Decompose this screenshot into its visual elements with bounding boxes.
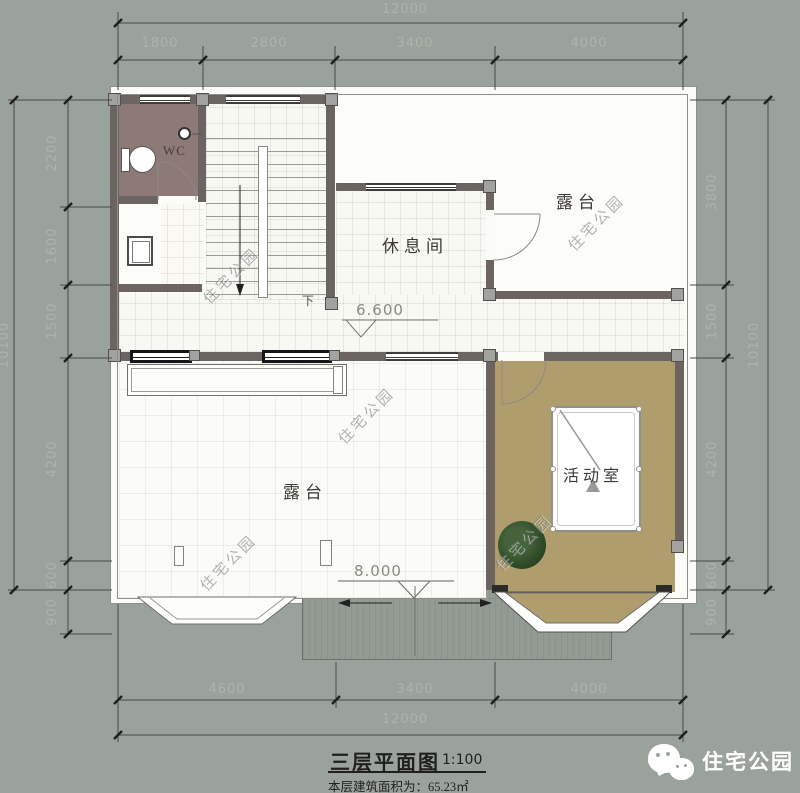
column: [483, 349, 496, 362]
wall-wc-right: [198, 104, 206, 202]
column: [108, 349, 121, 362]
wall-hall-bottom-c: [332, 352, 386, 361]
planter-end-post: [333, 366, 343, 394]
window-stairs-top: [226, 95, 300, 104]
column: [483, 180, 496, 193]
wall-terrace-top-bottom: [486, 291, 684, 299]
window-wc-top: [140, 95, 190, 104]
window-hall-bottom: [386, 352, 458, 361]
shaft-fixture: [127, 236, 153, 266]
wall-hall-bottom-e: [544, 352, 684, 361]
level-text-6600: 6.600: [356, 301, 404, 319]
dim-top-seg: 2800: [239, 36, 299, 51]
wall-wc-bottom: [110, 196, 158, 204]
column: [189, 350, 200, 361]
column: [483, 288, 496, 301]
dim-bottom-seg: 3400: [385, 682, 445, 697]
wall-activity-left: [486, 352, 495, 590]
wechat-icon: [648, 742, 696, 786]
dim-right-seg: 3800: [705, 162, 719, 222]
area-note: 本层建筑面积为：65.23㎡: [328, 776, 469, 793]
wc-light-fixture: [178, 127, 191, 140]
wall-stair-right: [326, 95, 335, 308]
label-stairs-down: 下: [302, 292, 314, 309]
window-terrace-2: [262, 350, 332, 363]
dim-top-seg: 4000: [559, 36, 619, 51]
terrace-top-floor: [335, 95, 685, 191]
dim-top-seg: 3400: [385, 36, 445, 51]
floor-plan-canvas: 12000 1800 2800 3400 4000 4600 3400 4000…: [0, 0, 800, 793]
label-terrace-bottom: 露台: [283, 478, 327, 503]
dim-bottom-seg: 4600: [197, 682, 257, 697]
label-rest-room: 休息间: [382, 232, 448, 257]
terrace-post-1: [174, 546, 184, 566]
bay-stub-left: [492, 585, 508, 593]
title-underline: [328, 771, 486, 773]
label-wc: WC: [163, 143, 186, 159]
column: [671, 540, 684, 553]
bay-stub-right: [656, 585, 672, 593]
terrace-post-2: [320, 540, 332, 566]
column: [325, 297, 338, 310]
column: [671, 349, 684, 362]
dim-right-seg: 900: [705, 582, 719, 642]
column: [671, 288, 684, 301]
dim-left-seg: 1500: [45, 291, 59, 351]
planter-box-inner: [131, 368, 343, 392]
level-text-8000: 8.000: [354, 562, 402, 580]
dim-left-seg: 900: [45, 582, 59, 642]
wall-left-outer: [110, 95, 119, 360]
dim-bottom-total: 12000: [375, 712, 435, 727]
window-restroom-top: [366, 183, 456, 191]
wall-activity-right: [675, 361, 684, 547]
dim-top-total: 12000: [375, 2, 435, 17]
brand-name: 住宅公园: [702, 746, 794, 776]
dim-bottom-seg: 4000: [559, 682, 619, 697]
dim-right-seg: 1500: [705, 291, 719, 351]
dim-right-total: 10100: [747, 315, 761, 375]
dim-left-seg: 4200: [45, 429, 59, 489]
column: [196, 93, 209, 106]
shaft-fixture-inner: [132, 241, 150, 263]
wall-niche-bottom: [110, 284, 202, 292]
column: [325, 93, 338, 106]
dim-left-seg: 2200: [45, 123, 59, 183]
dim-left-total: 10100: [0, 315, 11, 375]
dim-left-seg: 1600: [45, 216, 59, 276]
window-terrace-1: [130, 350, 192, 363]
planter-box: [127, 364, 347, 396]
wall-hall-bottom-b: [192, 352, 262, 361]
dim-top-seg: 1800: [130, 36, 190, 51]
stair-railing: [258, 146, 268, 298]
column: [108, 93, 121, 106]
label-activity-room: 活动室: [563, 462, 623, 486]
column: [329, 350, 340, 361]
dim-right-seg: 4200: [705, 429, 719, 489]
plan-scale: 1:100: [442, 752, 482, 768]
